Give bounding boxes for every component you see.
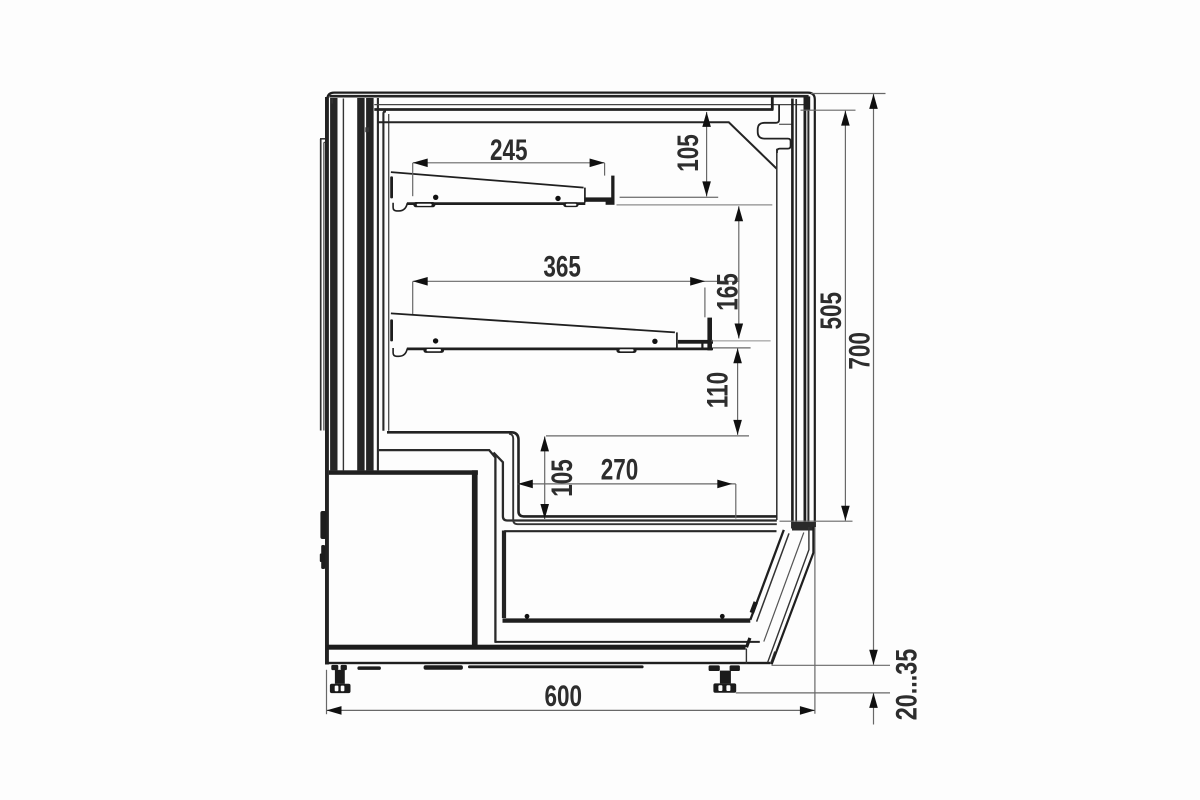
svg-text:505: 505 — [814, 292, 848, 330]
svg-text:245: 245 — [490, 133, 528, 167]
svg-text:365: 365 — [543, 249, 581, 283]
svg-text:110: 110 — [700, 372, 734, 408]
svg-text:600: 600 — [545, 679, 583, 713]
svg-text:105: 105 — [545, 459, 579, 497]
svg-text:165: 165 — [710, 273, 744, 311]
svg-text:700: 700 — [842, 332, 876, 370]
svg-text:270: 270 — [601, 452, 639, 486]
svg-text:20...35: 20...35 — [890, 649, 923, 721]
svg-text:105: 105 — [671, 134, 705, 172]
